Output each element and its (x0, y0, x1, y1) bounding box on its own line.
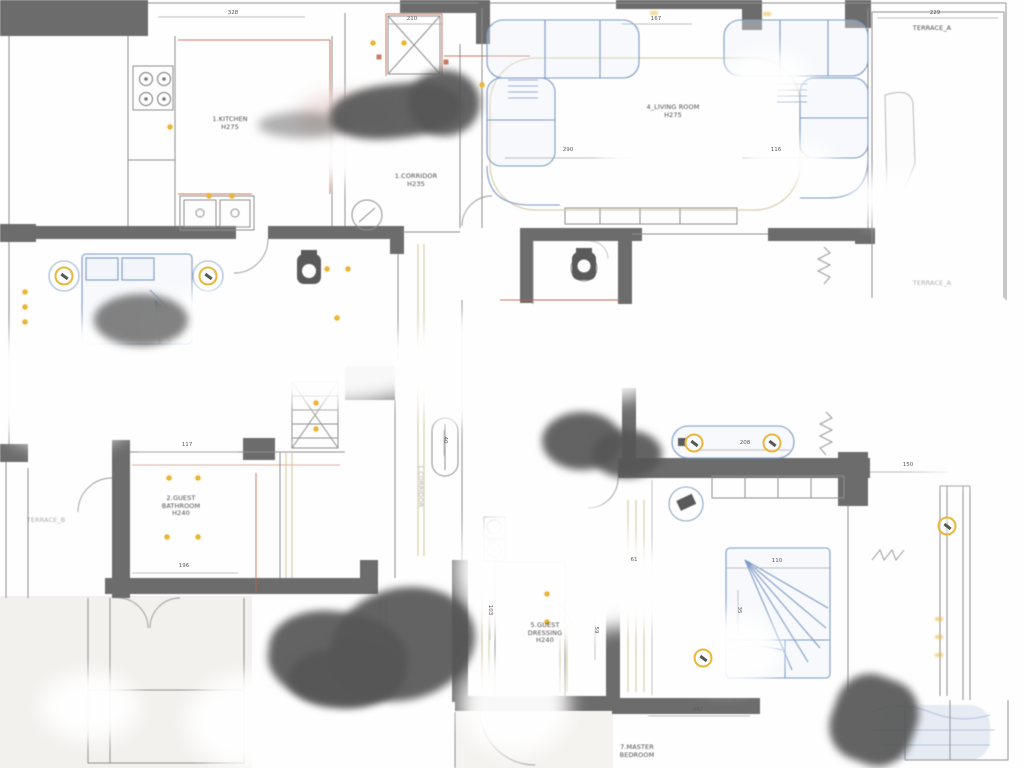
room-label-living-room: 4_LIVING ROOM H275 (647, 104, 700, 119)
ceiling-light-icon (165, 535, 170, 540)
room-label-guest-bathroom: 2.GUEST BATHROOM H240 (162, 495, 200, 518)
wall-light-icon (938, 517, 957, 536)
ceiling-light-icon (23, 290, 28, 295)
floor-plan-page: 1.KITCHEN H2751.CORRIDOR H2354_LIVING RO… (0, 0, 1024, 768)
dimension-label: 150 (903, 462, 914, 468)
dimension-label: 110 (772, 558, 783, 564)
ceiling-light-icon (168, 125, 173, 130)
light-mark-icon (935, 653, 943, 657)
dimension-label: 208 (740, 440, 751, 446)
dimension-label: 210 (407, 16, 418, 22)
dimension-label: 167 (651, 16, 662, 22)
room-label-kitchen: 1.KITCHEN H275 (212, 116, 247, 131)
ceiling-light-icon (402, 41, 407, 46)
wall-light-icon (694, 649, 713, 668)
toilet-icon (297, 250, 321, 284)
ceiling-light-icon (335, 316, 340, 321)
ceiling-light-icon (314, 401, 319, 406)
room-label-terrace-a-top: TERRACE_A (913, 25, 951, 33)
dimension-label: 35 (736, 607, 742, 614)
dimension-label: 229 (930, 10, 941, 16)
toilet-icon (572, 248, 596, 280)
dimension-label: 328 (228, 10, 239, 16)
ceiling-light-icon (314, 427, 319, 432)
wall-light-icon (763, 434, 782, 453)
light-mark-icon (763, 12, 771, 16)
room-label-guest-dressing: 5.GUEST DRESSING H240 (528, 622, 563, 645)
ceiling-light-icon (23, 320, 28, 325)
room-label-corridor: 1.CORRIDOR H235 (395, 173, 437, 188)
room-label-master-bedroom: 7.MASTER BEDROOM (620, 744, 655, 759)
dimension-label: 40 (442, 437, 448, 444)
ceiling-light-icon (545, 592, 550, 597)
ceiling-light-icon (167, 476, 172, 481)
dimension-label: 462 (693, 707, 704, 713)
ceiling-light-icon (371, 41, 376, 46)
light-mark-icon (935, 635, 943, 639)
furniture-layer (49, 20, 995, 760)
dimension-label: 59 (593, 627, 599, 634)
ceiling-light-icon (480, 83, 485, 88)
ceiling-light-icon (346, 267, 351, 272)
radiator-symbols (818, 247, 904, 560)
light-mark-icon (650, 11, 658, 15)
room-label-corridor-vertical: 1.CORRIDOR (416, 465, 424, 507)
dimension-label: 117 (182, 442, 193, 448)
ceiling-light-icon (23, 305, 28, 310)
dimension-label: 290 (563, 147, 574, 153)
wall-light-icon (199, 267, 218, 286)
ceiling-light-icon (325, 267, 330, 272)
room-label-terrace-b: TERRACE_B (27, 517, 65, 525)
dimension-label: 196 (179, 563, 190, 569)
cooktop-icon (140, 73, 171, 106)
floor-plan-drawing (0, 0, 1024, 768)
dimension-label: 116 (771, 147, 782, 153)
wall-light-icon (55, 267, 74, 286)
room-label-terrace-a-mid: TERRACE_A (913, 280, 951, 288)
wall-light-icon (685, 434, 704, 453)
ceiling-light-icon (196, 535, 201, 540)
ceiling-light-icon (207, 194, 212, 199)
fixtures-layer (297, 248, 596, 284)
dimension-label: 61 (631, 557, 638, 563)
ceiling-light-icon (230, 194, 235, 199)
dimension-label: 103 (487, 605, 493, 616)
light-mark-icon (935, 617, 943, 621)
ceiling-light-icon (196, 476, 201, 481)
